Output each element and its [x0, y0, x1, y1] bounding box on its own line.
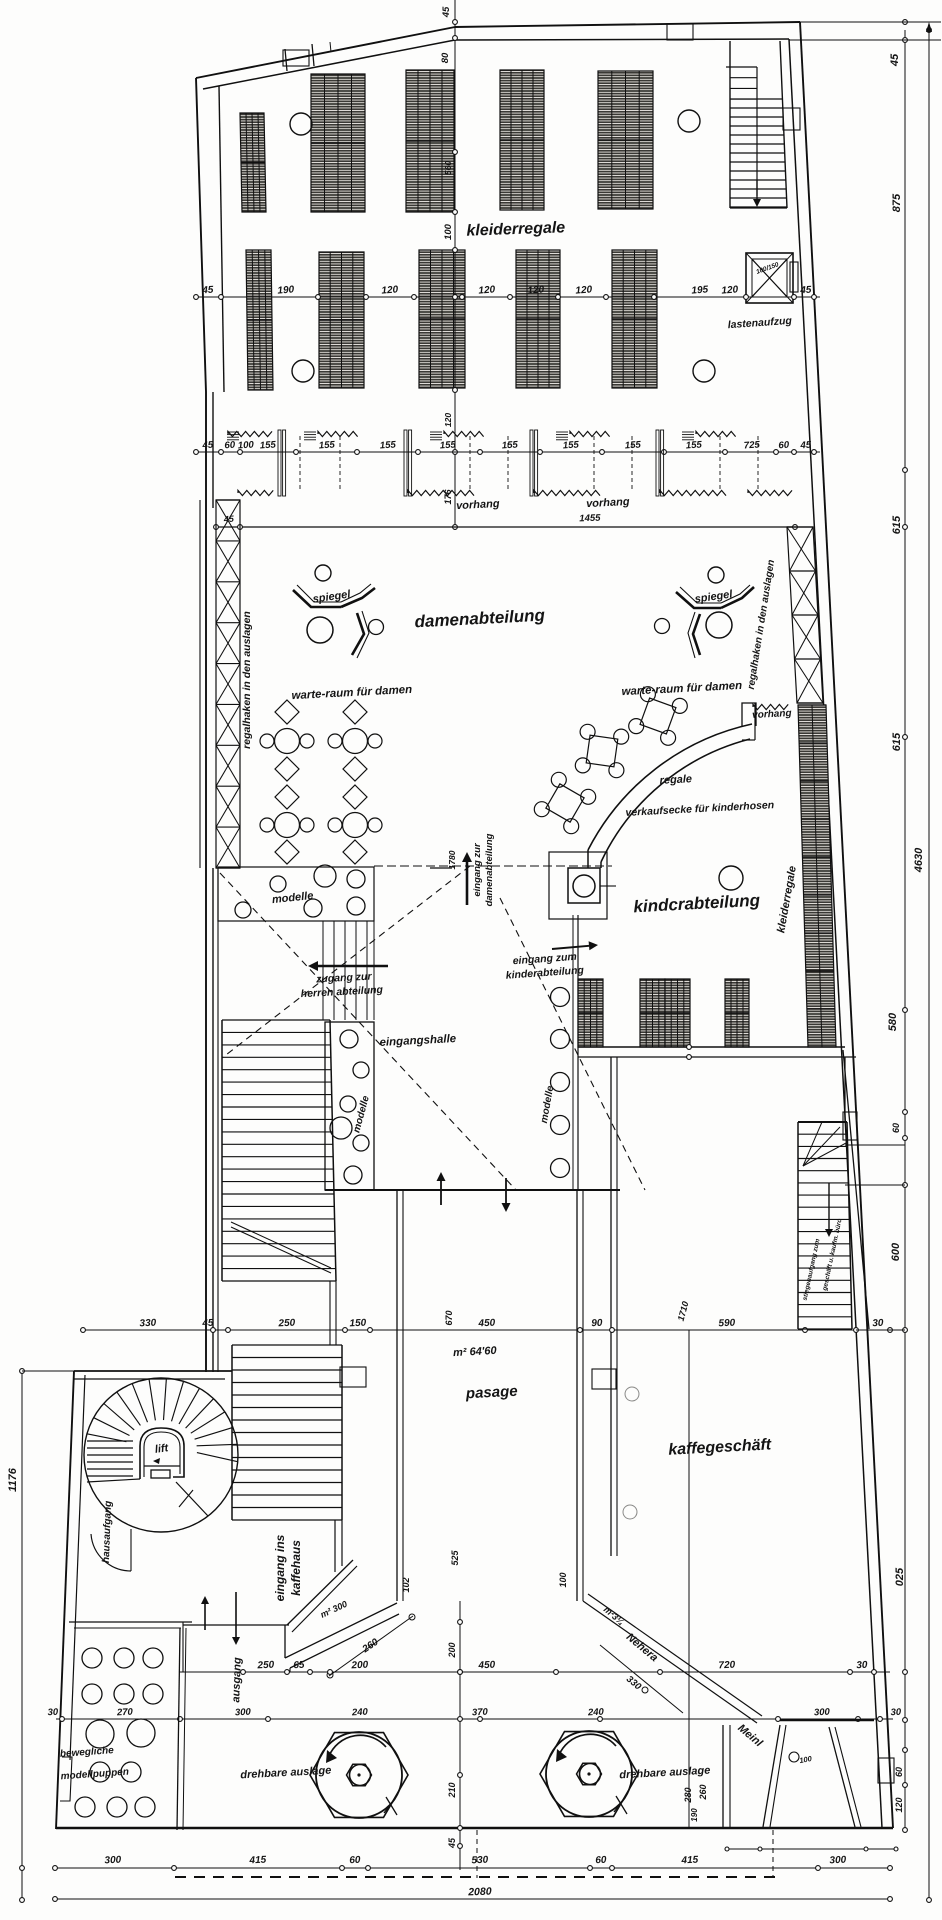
svg-text:damenabteilung: damenabteilung [484, 833, 495, 906]
svg-text:415: 415 [680, 1855, 699, 1867]
svg-text:280: 280 [683, 1787, 693, 1803]
svg-text:120: 120 [443, 413, 453, 427]
svg-text:600: 600 [890, 1242, 902, 1261]
svg-text:155: 155 [562, 439, 579, 451]
svg-text:200: 200 [350, 1660, 369, 1672]
svg-text:615: 615 [891, 515, 903, 534]
svg-text:330: 330 [139, 1318, 157, 1330]
svg-text:530: 530 [471, 1855, 489, 1867]
svg-text:190: 190 [277, 284, 295, 296]
svg-text:580: 580 [887, 1012, 899, 1031]
svg-text:100: 100 [237, 439, 254, 451]
svg-text:2080: 2080 [467, 1886, 492, 1899]
svg-text:250: 250 [277, 1318, 296, 1330]
svg-text:720: 720 [718, 1660, 736, 1672]
svg-text:vorhang: vorhang [752, 708, 792, 721]
svg-text:240: 240 [351, 1707, 369, 1719]
svg-text:210: 210 [447, 1782, 457, 1798]
svg-text:100: 100 [558, 1572, 568, 1587]
svg-text:eingang ins: eingang ins [273, 1534, 287, 1601]
svg-text:m² 64'60: m² 64'60 [453, 1345, 498, 1359]
svg-text:90: 90 [591, 1318, 603, 1330]
svg-text:60: 60 [224, 440, 236, 452]
svg-text:kaffehaus: kaffehaus [289, 1540, 303, 1596]
svg-text:450: 450 [477, 1318, 496, 1330]
svg-text:590: 590 [718, 1318, 736, 1330]
svg-text:120: 120 [478, 284, 496, 296]
svg-text:65: 65 [293, 1660, 305, 1672]
svg-text:450: 450 [477, 1660, 496, 1672]
svg-text:300: 300 [829, 1855, 847, 1867]
svg-text:155: 155 [624, 439, 641, 451]
svg-text:30: 30 [47, 1707, 59, 1719]
svg-text:60: 60 [778, 440, 790, 452]
svg-text:regalhaken in den auslagen: regalhaken in den auslagen [241, 611, 253, 749]
svg-text:60: 60 [349, 1855, 361, 1867]
svg-text:100: 100 [443, 223, 454, 240]
svg-text:120: 120 [721, 284, 739, 296]
svg-text:370: 370 [472, 1707, 489, 1719]
svg-text:155: 155 [439, 439, 456, 451]
svg-text:155: 155 [259, 439, 276, 451]
svg-text:hausaufgang: hausaufgang [101, 1501, 114, 1564]
svg-text:30: 30 [890, 1707, 902, 1719]
svg-text:45: 45 [799, 440, 812, 452]
svg-text:120: 120 [575, 284, 593, 296]
svg-text:525: 525 [450, 1550, 460, 1566]
svg-text:025: 025 [894, 1567, 906, 1586]
svg-text:270: 270 [116, 1707, 134, 1719]
svg-text:300: 300 [104, 1855, 122, 1867]
svg-text:45: 45 [799, 285, 812, 297]
svg-text:200: 200 [447, 1642, 457, 1658]
svg-text:45: 45 [889, 53, 901, 67]
svg-text:155: 155 [685, 439, 702, 451]
svg-text:regale: regale [659, 773, 692, 787]
svg-text:155: 155 [501, 439, 518, 451]
svg-text:vorhang: vorhang [586, 496, 630, 510]
svg-text:190: 190 [690, 1808, 699, 1822]
svg-text:45: 45 [201, 1318, 214, 1330]
svg-text:120: 120 [381, 284, 399, 296]
svg-text:240: 240 [587, 1707, 605, 1719]
svg-text:45: 45 [447, 1837, 457, 1849]
svg-text:560: 560 [443, 161, 453, 175]
svg-text:80: 80 [440, 52, 451, 63]
svg-text:1780: 1780 [447, 850, 457, 869]
svg-text:vorhang: vorhang [456, 498, 500, 512]
svg-text:45: 45 [441, 6, 452, 18]
svg-text:60: 60 [891, 1123, 901, 1133]
svg-text:615: 615 [891, 732, 903, 751]
svg-text:45: 45 [201, 285, 214, 297]
svg-text:875: 875 [891, 193, 903, 212]
svg-text:30: 30 [856, 1660, 868, 1672]
svg-text:4630: 4630 [913, 847, 925, 873]
svg-text:kleiderregale: kleiderregale [466, 219, 565, 239]
svg-text:1455: 1455 [579, 513, 601, 525]
svg-text:195: 195 [691, 284, 709, 296]
svg-text:300: 300 [235, 1707, 252, 1719]
svg-text:155: 155 [318, 439, 335, 451]
svg-text:30: 30 [872, 1318, 884, 1330]
svg-text:102: 102 [401, 1577, 411, 1592]
svg-text:150: 150 [349, 1318, 367, 1330]
svg-text:155: 155 [379, 439, 396, 451]
svg-text:ausgang: ausgang [230, 1657, 244, 1703]
svg-text:120: 120 [894, 1797, 904, 1812]
svg-text:250: 250 [256, 1660, 275, 1672]
svg-text:eingang zur: eingang zur [472, 842, 483, 897]
svg-text:60: 60 [894, 1767, 904, 1777]
svg-text:1176: 1176 [7, 1467, 19, 1492]
svg-text:415: 415 [248, 1855, 267, 1867]
svg-text:300: 300 [814, 1707, 831, 1719]
svg-text:120: 120 [527, 284, 545, 296]
svg-text:60: 60 [595, 1855, 607, 1867]
svg-text:45: 45 [201, 440, 214, 452]
svg-text:260: 260 [698, 1784, 708, 1800]
svg-text:670: 670 [444, 1310, 454, 1325]
svg-text:pasage: pasage [465, 1383, 519, 1403]
